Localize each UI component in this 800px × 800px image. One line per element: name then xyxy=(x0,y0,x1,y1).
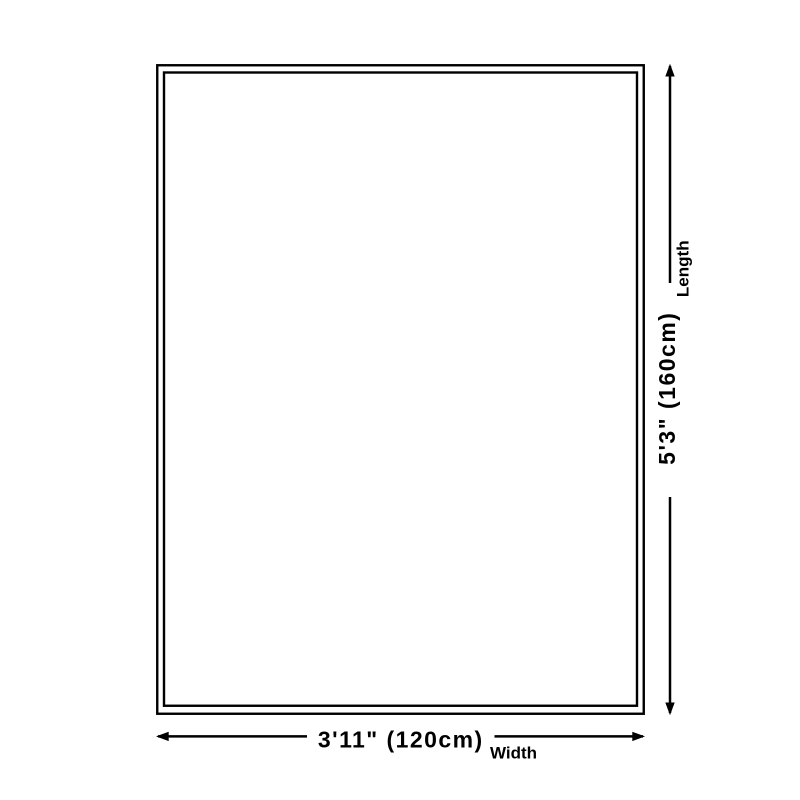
svg-text:Length: Length xyxy=(673,240,692,297)
svg-text:5'3" (160cm): 5'3" (160cm) xyxy=(654,312,680,465)
svg-text:3'11" (120cm): 3'11" (120cm) xyxy=(318,727,484,753)
svg-text:Width: Width xyxy=(490,743,537,762)
